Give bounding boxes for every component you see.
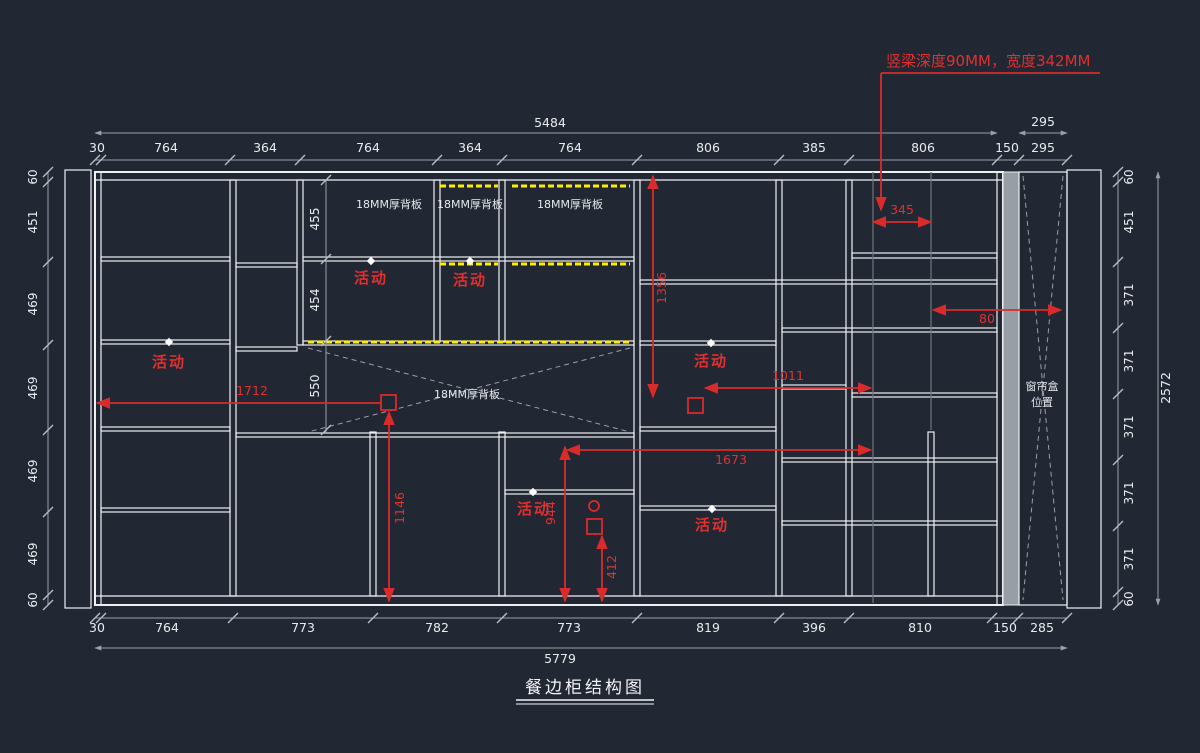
movable-label: 活动 — [354, 269, 388, 287]
dim-bottom: 810 — [908, 620, 932, 635]
backboard-label: 18MM厚背板 — [356, 197, 422, 211]
backboard-label: 18MM厚背板 — [537, 197, 603, 211]
curtain-box-label-line2: 位置 — [1031, 395, 1053, 409]
dim-right: 60 — [1122, 591, 1136, 606]
dim-bottom: 396 — [802, 620, 826, 635]
dim-right: 371 — [1122, 284, 1136, 307]
dim-bottom: 150 — [993, 620, 1017, 635]
dim-left: 451 — [26, 211, 40, 234]
cabinet-structure-drawing: 18MM厚背板 18MM厚背板 18MM厚背板 18MM厚背板 窗帘盒 位置 活… — [0, 0, 1200, 753]
inner-dim: 454 — [308, 289, 322, 312]
dim-top: 806 — [696, 140, 720, 155]
red-dim-944: 944 — [543, 501, 558, 525]
curtain-box-label-line1: 窗帘盒 — [1026, 379, 1059, 393]
dim-top: 295 — [1031, 140, 1055, 155]
dim-bottom: 764 — [155, 620, 179, 635]
red-dim-1673: 1673 — [715, 452, 747, 467]
dim-right: 451 — [1122, 211, 1136, 234]
movable-label: 活动 — [453, 271, 487, 289]
dim-top: 150 — [995, 140, 1019, 155]
red-dim-1011: 1011 — [772, 368, 804, 383]
red-dim-412: 412 — [604, 555, 619, 579]
dim-bottom: 819 — [696, 620, 720, 635]
backboard-label: 18MM厚背板 — [437, 197, 503, 211]
dim-bottom: 285 — [1030, 620, 1054, 635]
dim-right: 371 — [1122, 350, 1136, 373]
inner-dim: 455 — [308, 208, 322, 231]
dim-left: 469 — [26, 460, 40, 483]
dim-top: 764 — [558, 140, 582, 155]
dim-right-total: 2572 — [1158, 372, 1173, 404]
dim-top: 30 — [89, 140, 105, 155]
dim-top-total: 5484 — [534, 115, 566, 130]
dim-bottom-total: 5779 — [544, 651, 576, 666]
dim-top-curtain-total: 295 — [1031, 114, 1055, 129]
dim-right: 371 — [1122, 416, 1136, 439]
dim-left: 469 — [26, 377, 40, 400]
beam-callout-text: 竖梁深度90MM，宽度342MM — [886, 52, 1091, 70]
dim-right: 60 — [1122, 169, 1136, 184]
red-dim-345: 345 — [890, 202, 914, 217]
red-dim-1712: 1712 — [236, 383, 268, 398]
dim-top: 364 — [458, 140, 482, 155]
red-dim-1356: 1356 — [654, 272, 669, 304]
drawing-title-block: 餐边柜结构图 — [516, 678, 654, 704]
dim-bottom: 773 — [557, 620, 581, 635]
backboard-label: 18MM厚背板 — [434, 387, 500, 401]
dim-top: 764 — [154, 140, 178, 155]
dim-left: 469 — [26, 543, 40, 566]
drawing-title: 餐边柜结构图 — [525, 678, 645, 698]
dim-top: 764 — [356, 140, 380, 155]
movable-label: 活动 — [695, 516, 729, 534]
movable-label: 活动 — [152, 353, 186, 371]
dim-bottom: 773 — [291, 620, 315, 635]
dim-left: 60 — [26, 592, 40, 607]
model-space-background — [0, 0, 1200, 753]
pelmet-gray-band — [1003, 172, 1019, 605]
dim-bottom: 782 — [425, 620, 449, 635]
dim-right: 371 — [1122, 482, 1136, 505]
dim-left: 60 — [26, 169, 40, 184]
dim-top: 385 — [802, 140, 826, 155]
dim-top: 364 — [253, 140, 277, 155]
inner-dim: 550 — [308, 375, 322, 398]
dim-right: 371 — [1122, 548, 1136, 571]
dim-bottom: 30 — [89, 620, 105, 635]
cad-canvas: 18MM厚背板 18MM厚背板 18MM厚背板 18MM厚背板 窗帘盒 位置 活… — [0, 0, 1200, 753]
movable-label: 活动 — [694, 352, 728, 370]
dim-top: 806 — [911, 140, 935, 155]
dim-left: 469 — [26, 293, 40, 316]
red-dim-1146: 1146 — [392, 492, 407, 524]
red-dim-80: 80 — [979, 311, 995, 326]
